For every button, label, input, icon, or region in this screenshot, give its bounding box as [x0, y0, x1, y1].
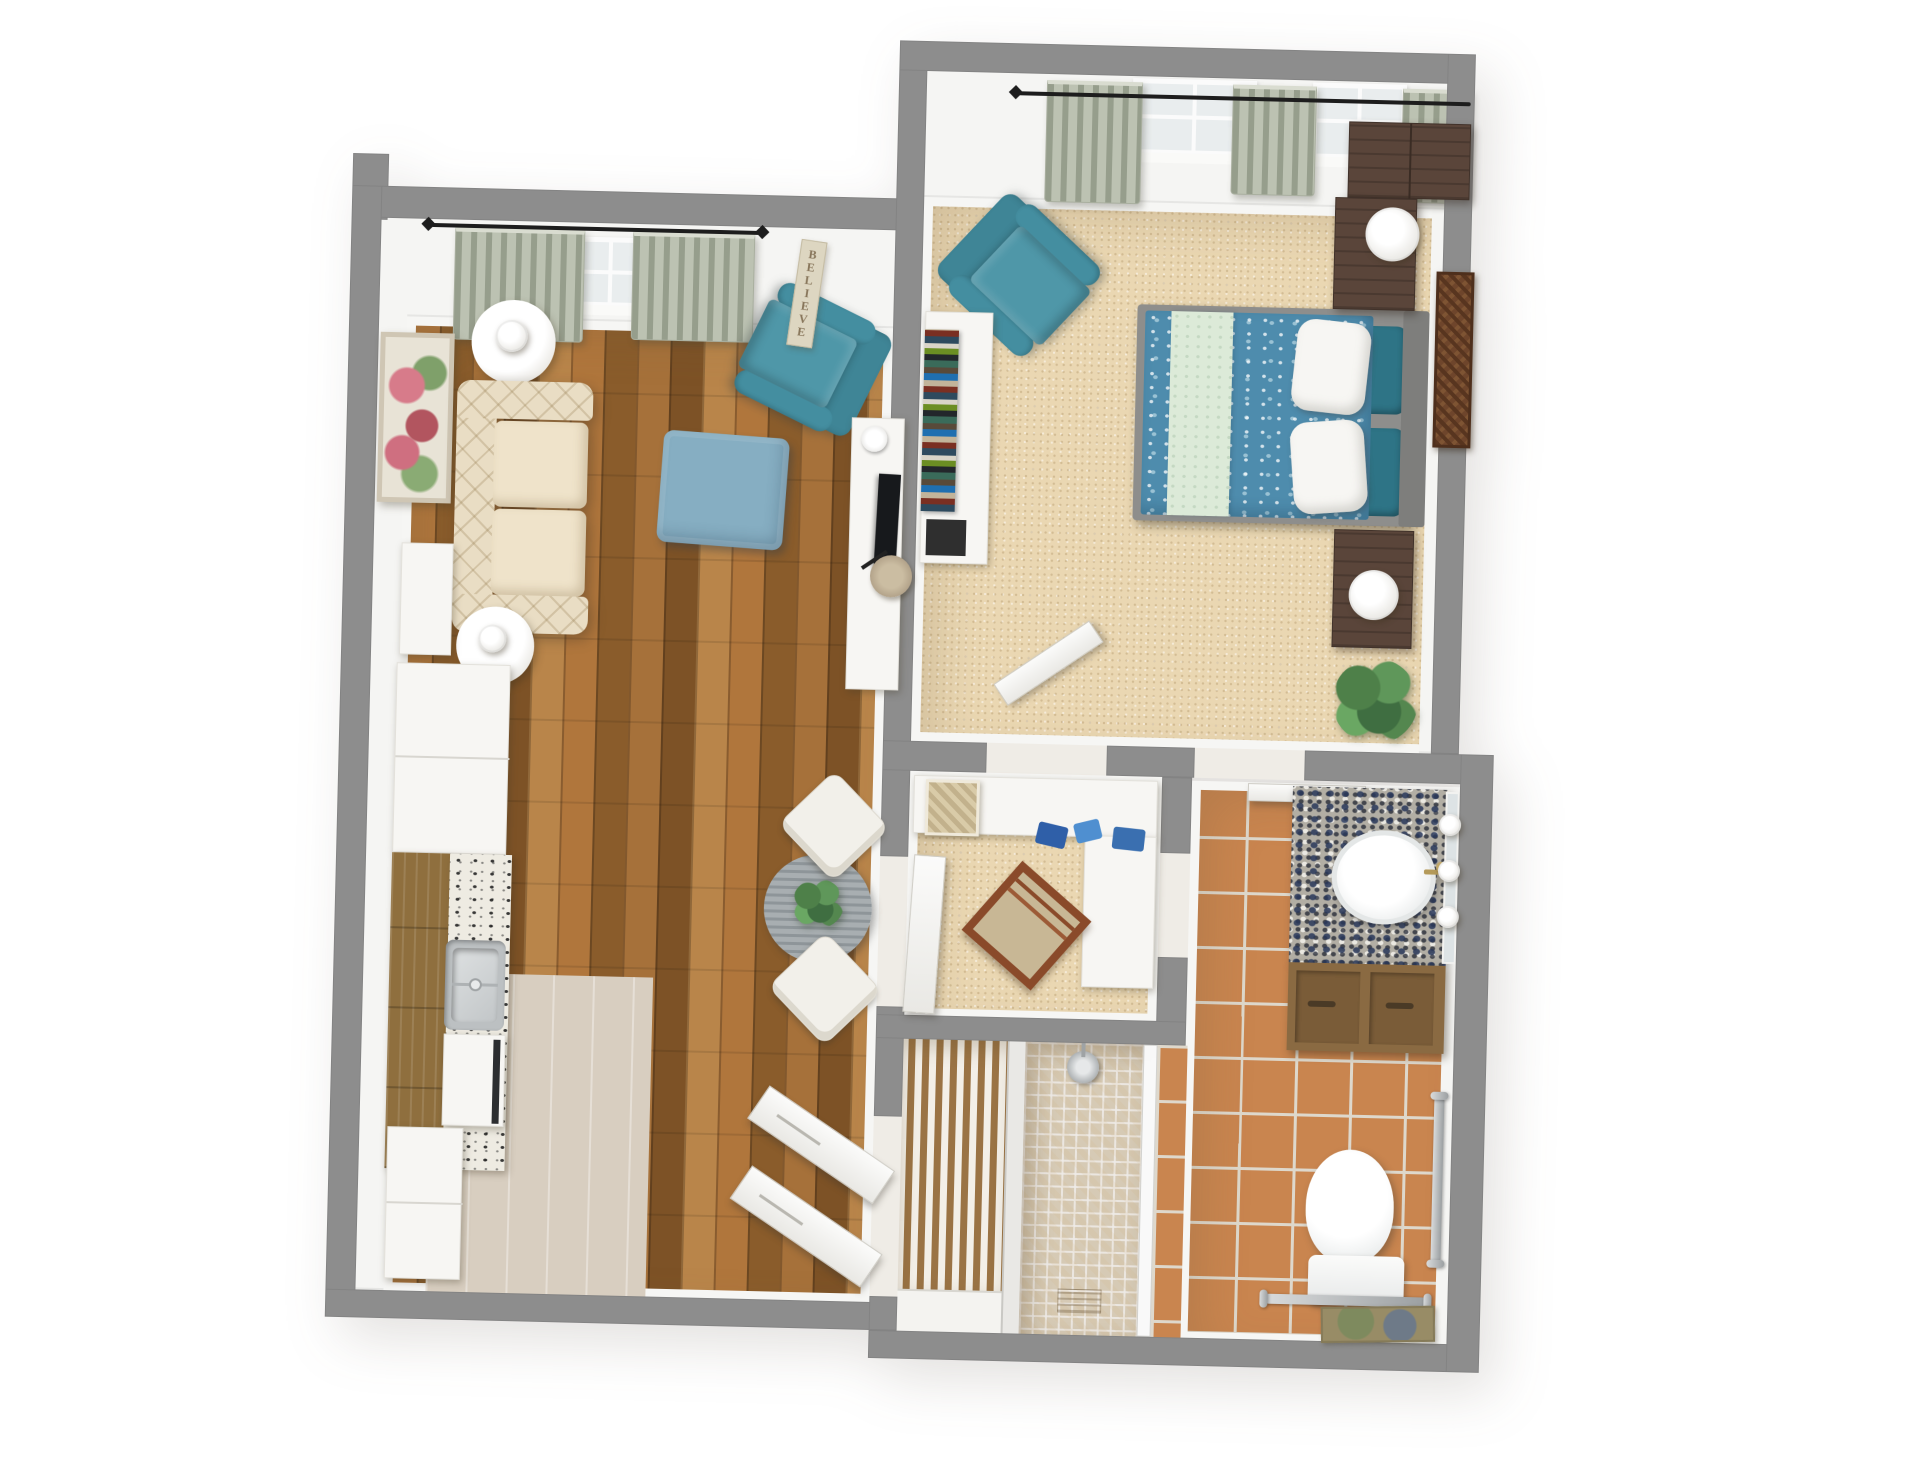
sofa-cushion	[490, 509, 586, 597]
cabinet-handle	[1386, 1002, 1414, 1009]
bathroom-sliding-doorway	[1194, 748, 1305, 781]
woven-basket	[925, 779, 980, 836]
floral-wall-art	[377, 332, 455, 504]
sofa-cushion	[493, 421, 589, 509]
blue-accessory	[1112, 826, 1146, 851]
white-pillow	[1289, 317, 1373, 417]
spine-wall-lower	[869, 1296, 898, 1331]
wardrobe-seam	[1408, 124, 1412, 200]
book-stack	[921, 329, 959, 512]
shower-drain	[1057, 1289, 1102, 1314]
bedroom-bottom-wall-a	[882, 740, 987, 773]
den-bathroom-doorway	[1158, 853, 1191, 958]
grey-headboard	[1398, 311, 1429, 528]
kitchen-sink	[444, 940, 506, 1031]
toilet-bowl	[1304, 1149, 1395, 1265]
carved-wood-wall-art	[1432, 272, 1474, 449]
grab-bar-flange	[1426, 1260, 1444, 1268]
mint-accent-band	[1167, 311, 1234, 516]
floor-plan-canvas: BELIEVE	[0, 0, 1920, 1440]
door-handle	[759, 1194, 804, 1226]
living-curtain-right	[631, 232, 756, 343]
grab-bar-flange	[1259, 1289, 1267, 1307]
sofa-arm-top	[457, 380, 594, 421]
den-right-wall-upper	[1160, 777, 1192, 854]
white-console	[399, 542, 454, 655]
dishwasher	[441, 1033, 505, 1126]
refrigerator	[392, 662, 511, 855]
wardrobe	[1347, 121, 1471, 200]
bedroom-doorway	[986, 743, 1107, 776]
door-handle	[776, 1114, 821, 1146]
closet-base	[888, 1288, 1002, 1333]
closet-doorway	[869, 1116, 901, 1297]
tufted-sofa	[452, 380, 594, 635]
bath-mat	[1321, 1306, 1435, 1343]
bedroom-curtain-left	[1044, 80, 1143, 204]
vanity-cabinet	[1287, 962, 1446, 1054]
closet-floor	[889, 1039, 1008, 1292]
apartment-floor-plan: BELIEVE	[0, 0, 1920, 1463]
grab-bar-flange	[1430, 1092, 1448, 1100]
base-cabinets	[384, 1126, 464, 1280]
blue-ottoman	[656, 429, 790, 550]
console-slot	[926, 519, 967, 556]
dishwasher-handle	[492, 1040, 501, 1124]
cabinet-seam	[387, 1201, 463, 1205]
white-pillow	[1289, 419, 1369, 515]
cabinet-handle	[1308, 1001, 1336, 1008]
fridge-door-seam	[395, 755, 509, 760]
bedroom-bottom-wall-b	[1106, 746, 1195, 778]
den-desk-right	[1081, 835, 1157, 989]
shower-arm	[1081, 1043, 1085, 1057]
kitchen-cabinets	[384, 852, 450, 1169]
